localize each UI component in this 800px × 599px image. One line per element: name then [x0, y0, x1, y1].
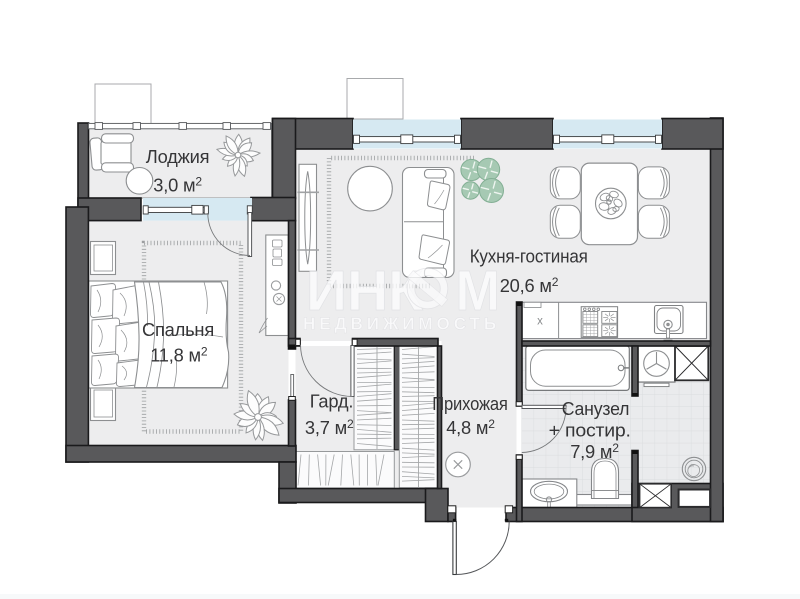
svg-text:Кухня-гостиная: Кухня-гостиная — [470, 246, 588, 267]
svg-text:7,9 м2: 7,9 м2 — [570, 441, 619, 462]
svg-text:Спальня: Спальня — [142, 319, 214, 340]
svg-text:4,8 м2: 4,8 м2 — [446, 417, 495, 438]
svg-text:Санузел: Санузел — [562, 398, 630, 419]
svg-text:Прихожая: Прихожая — [432, 393, 508, 414]
svg-text:3,0 м2: 3,0 м2 — [153, 175, 202, 196]
svg-text:+ постир.: + постир. — [549, 420, 631, 441]
svg-text:3,7 м2: 3,7 м2 — [305, 417, 354, 438]
svg-text:Гард.: Гард. — [310, 390, 354, 411]
svg-text:11,8 м2: 11,8 м2 — [150, 345, 208, 366]
svg-text:20,6 м2: 20,6 м2 — [500, 275, 559, 296]
svg-text:x: x — [537, 316, 543, 328]
svg-text:Лоджия: Лоджия — [146, 146, 210, 167]
svg-text:НЕДВИЖИМОСТЬ: НЕДВИЖИМОСТЬ — [303, 314, 500, 334]
